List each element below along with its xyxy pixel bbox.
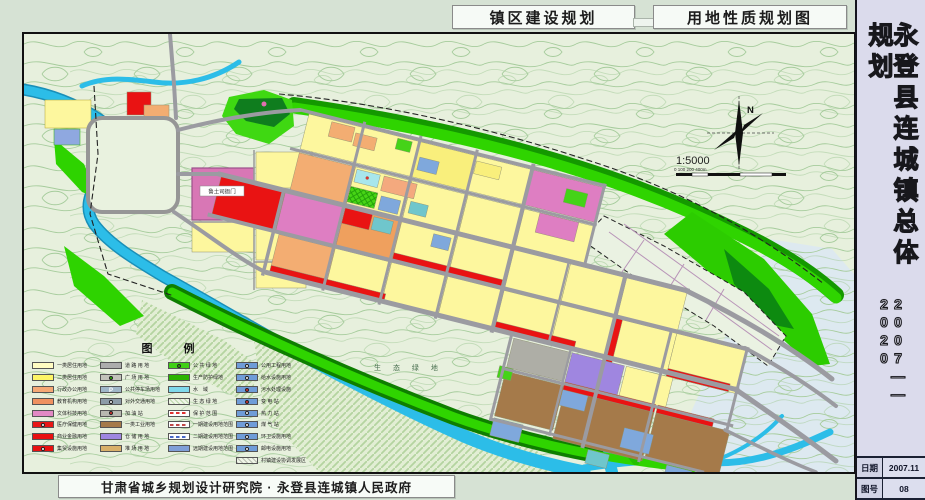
P-icon: P — [101, 388, 121, 395]
legend-label: 商业金融用地 — [57, 433, 87, 440]
legend-item: 公用工程用地 — [236, 360, 300, 372]
legend-item: 二期建设用地范围 — [168, 431, 232, 443]
legend-swatch — [236, 421, 258, 428]
legend-label: 道 路 用 地 — [125, 362, 149, 369]
legend-item: 热 力 站 — [236, 407, 300, 419]
title-connector — [633, 18, 655, 27]
legend-label: 一类工业用地 — [125, 421, 155, 428]
legend-swatch — [32, 445, 54, 452]
dot-icon — [245, 447, 249, 451]
legend-label: 村镇建设协调发展区 — [261, 457, 306, 464]
legend-label: 变 电 站 — [261, 398, 279, 405]
legend-label: 水 域 — [193, 386, 208, 393]
legend-label: 一类居住用地 — [57, 362, 87, 369]
legend-item: P公共停车场用地 — [100, 384, 164, 396]
legend-label: 邮电设施用地 — [261, 445, 291, 452]
legend-label: 给水设施用地 — [261, 374, 291, 381]
legend-swatch — [100, 398, 122, 405]
legend-item: 生产防护绿地 — [168, 372, 232, 384]
legend-label: 公用工程用地 — [261, 362, 291, 369]
legend-item: 一期建设用地范围 — [168, 419, 232, 431]
legend-label: 公共停车场用地 — [125, 386, 160, 393]
legend-columns: 一类居住用地二类居住用地行政办公用地教育机构用地文体科技用地医疗保健用地商业金融… — [32, 360, 304, 466]
legend-item: 医疗保健用地 — [32, 419, 96, 431]
yamen-label: 鲁土司衙门 — [208, 188, 236, 196]
legend-label: 广 场 用 地 — [125, 374, 149, 381]
dot-red-icon — [109, 411, 113, 415]
legend-item: 教育机构用地 — [32, 395, 96, 407]
dot-green-icon — [177, 364, 181, 368]
legend-item: 邮电设施用地 — [236, 443, 300, 455]
dot-icon — [245, 411, 249, 415]
legend-swatch — [236, 410, 258, 417]
date-row: 日期 2007.11 — [857, 458, 925, 479]
legend-item: 一类居住用地 — [32, 360, 96, 372]
legend-swatch — [236, 433, 258, 440]
legend-swatch — [168, 362, 190, 369]
legend-label: 环卫设施用地 — [261, 433, 291, 440]
date-value: 2007.11 — [883, 458, 925, 477]
legend-swatch — [168, 410, 190, 417]
legend-swatch — [236, 362, 258, 369]
sheet-number-value: 08 — [883, 479, 925, 498]
dot-green-icon — [109, 376, 113, 380]
legend-column: 一类居住用地二类居住用地行政办公用地教育机构用地文体科技用地医疗保健用地商业金融… — [32, 360, 96, 466]
legend-swatch — [236, 374, 258, 381]
scale-text: 1:5000 — [676, 155, 710, 167]
legend-swatch — [100, 445, 122, 452]
legend-swatch — [100, 410, 122, 417]
legend-item: 一类工业用地 — [100, 419, 164, 431]
legend-label: 生 态 绿 地 — [193, 398, 217, 405]
legend-label: 集贸设施用地 — [57, 445, 87, 452]
dot-icon — [41, 447, 45, 451]
legend-label: 二类居住用地 — [57, 374, 87, 381]
legend-swatch — [32, 398, 54, 405]
legend-label: 二期建设用地范围 — [193, 433, 233, 440]
legend-item: 保 护 范 围 — [168, 407, 232, 419]
title-left: 镇区建设规划 — [452, 5, 635, 29]
sheet-number-label: 图号 — [857, 479, 883, 498]
legend-label: 仓 储 用 地 — [125, 433, 149, 440]
plan-sheet: { "header": { "title_left": "镇区建设规划", "t… — [0, 0, 925, 500]
legend-label: 堆 场 用 地 — [125, 445, 149, 452]
legend-column: 公 共 绿 地生产防护绿地水 域生 态 绿 地保 护 范 围一期建设用地范围二期… — [168, 360, 232, 466]
dot-icon — [245, 364, 249, 368]
legend-item: 堆 场 用 地 — [100, 443, 164, 455]
legend-label: 对外交通用地 — [125, 398, 155, 405]
legend-swatch — [100, 433, 122, 440]
legend-swatch — [100, 421, 122, 428]
date-label: 日期 — [857, 458, 883, 477]
legend-swatch — [168, 445, 190, 452]
legend-item: 对外交通用地 — [100, 395, 164, 407]
legend-swatch — [32, 362, 54, 369]
legend-item: 加 油 站 — [100, 407, 164, 419]
legend-label: 远期建设用地范围 — [193, 445, 233, 452]
sheet-title-vertical: 永登县连城镇总体规划 — [866, 22, 916, 290]
dot-icon — [41, 423, 45, 427]
legend-swatch — [236, 445, 258, 452]
legend-label: 保 护 范 围 — [193, 410, 217, 417]
legend-item: 商业金融用地 — [32, 431, 96, 443]
legend-swatch — [100, 362, 122, 369]
legend-swatch — [32, 433, 54, 440]
credit-bar: 甘肃省城乡规划设计研究院 · 永登县连城镇人民政府 — [58, 475, 455, 498]
title-right: 用地性质规划图 — [653, 5, 847, 29]
legend-item: 远期建设用地范围 — [168, 443, 232, 455]
plan-map: N 1:5000 0 100 200 400m 鲁土司衙门 生 态 绿 地 图 … — [22, 32, 856, 474]
legend-swatch — [168, 398, 190, 405]
legend-title: 图 例 — [32, 340, 304, 356]
scale-ticks: 0 100 200 400m — [674, 167, 707, 172]
legend-label: 文体科技用地 — [57, 410, 87, 417]
legend-swatch — [236, 457, 258, 464]
plan-period: 2007——2020 — [877, 296, 905, 452]
legend-item: 给水设施用地 — [236, 372, 300, 384]
legend-swatch — [236, 386, 258, 393]
legend-label: 污水处理设施 — [261, 386, 291, 393]
legend-item: 水 域 — [168, 384, 232, 396]
dot-icon — [245, 435, 249, 439]
eco-green-label: 生 态 绿 地 — [374, 363, 443, 372]
legend-swatch — [32, 410, 54, 417]
legend-swatch — [32, 374, 54, 381]
legend-label: 一期建设用地范围 — [193, 421, 233, 428]
legend-item: 生 态 绿 地 — [168, 395, 232, 407]
legend-label: 生产防护绿地 — [193, 374, 223, 381]
legend-item: 行政办公用地 — [32, 384, 96, 396]
legend-label: 公 共 绿 地 — [193, 362, 217, 369]
legend-swatch: P — [100, 386, 122, 393]
sheet-info-table: 日期 2007.11 图号 08 — [857, 456, 925, 500]
legend-swatch — [168, 386, 190, 393]
legend-column: 道 路 用 地广 场 用 地P公共停车场用地对外交通用地加 油 站一类工业用地仓… — [100, 360, 164, 466]
legend-item: 二类居住用地 — [32, 372, 96, 384]
legend-label: 行政办公用地 — [57, 386, 87, 393]
legend-item: 文体科技用地 — [32, 407, 96, 419]
legend-swatch — [100, 374, 122, 381]
dot-icon — [109, 400, 113, 404]
legend-item: 道 路 用 地 — [100, 360, 164, 372]
dot-red-icon — [245, 400, 249, 404]
legend-item: 变 电 站 — [236, 395, 300, 407]
legend: 图 例 一类居住用地二类居住用地行政办公用地教育机构用地文体科技用地医疗保健用地… — [32, 340, 304, 466]
dot-red-icon — [245, 388, 249, 392]
legend-swatch — [32, 386, 54, 393]
dot-icon — [245, 423, 249, 427]
legend-label: 医疗保健用地 — [57, 421, 87, 428]
title-block-sidebar: 永登县连城镇总体规划 2007——2020 日期 2007.11 图号 08 — [855, 0, 925, 500]
legend-item: 广 场 用 地 — [100, 372, 164, 384]
legend-item: 仓 储 用 地 — [100, 431, 164, 443]
legend-item: 集贸设施用地 — [32, 443, 96, 455]
legend-swatch — [32, 421, 54, 428]
legend-label: 热 力 站 — [261, 410, 279, 417]
legend-swatch — [236, 398, 258, 405]
sheet-number-row: 图号 08 — [857, 479, 925, 500]
legend-item: 污水处理设施 — [236, 384, 300, 396]
legend-item: 村镇建设协调发展区 — [236, 454, 300, 466]
legend-swatch — [168, 421, 190, 428]
legend-swatch — [168, 374, 190, 381]
legend-swatch — [168, 433, 190, 440]
legend-item: 煤 气 站 — [236, 419, 300, 431]
legend-label: 煤 气 站 — [261, 421, 279, 428]
legend-item: 环卫设施用地 — [236, 431, 300, 443]
legend-label: 教育机构用地 — [57, 398, 87, 405]
dot-icon — [245, 376, 249, 380]
compass-n-label: N — [747, 105, 754, 116]
legend-column: 公用工程用地给水设施用地污水处理设施变 电 站热 力 站煤 气 站环卫设施用地邮… — [236, 360, 300, 466]
legend-item: 公 共 绿 地 — [168, 360, 232, 372]
legend-label: 加 油 站 — [125, 410, 143, 417]
